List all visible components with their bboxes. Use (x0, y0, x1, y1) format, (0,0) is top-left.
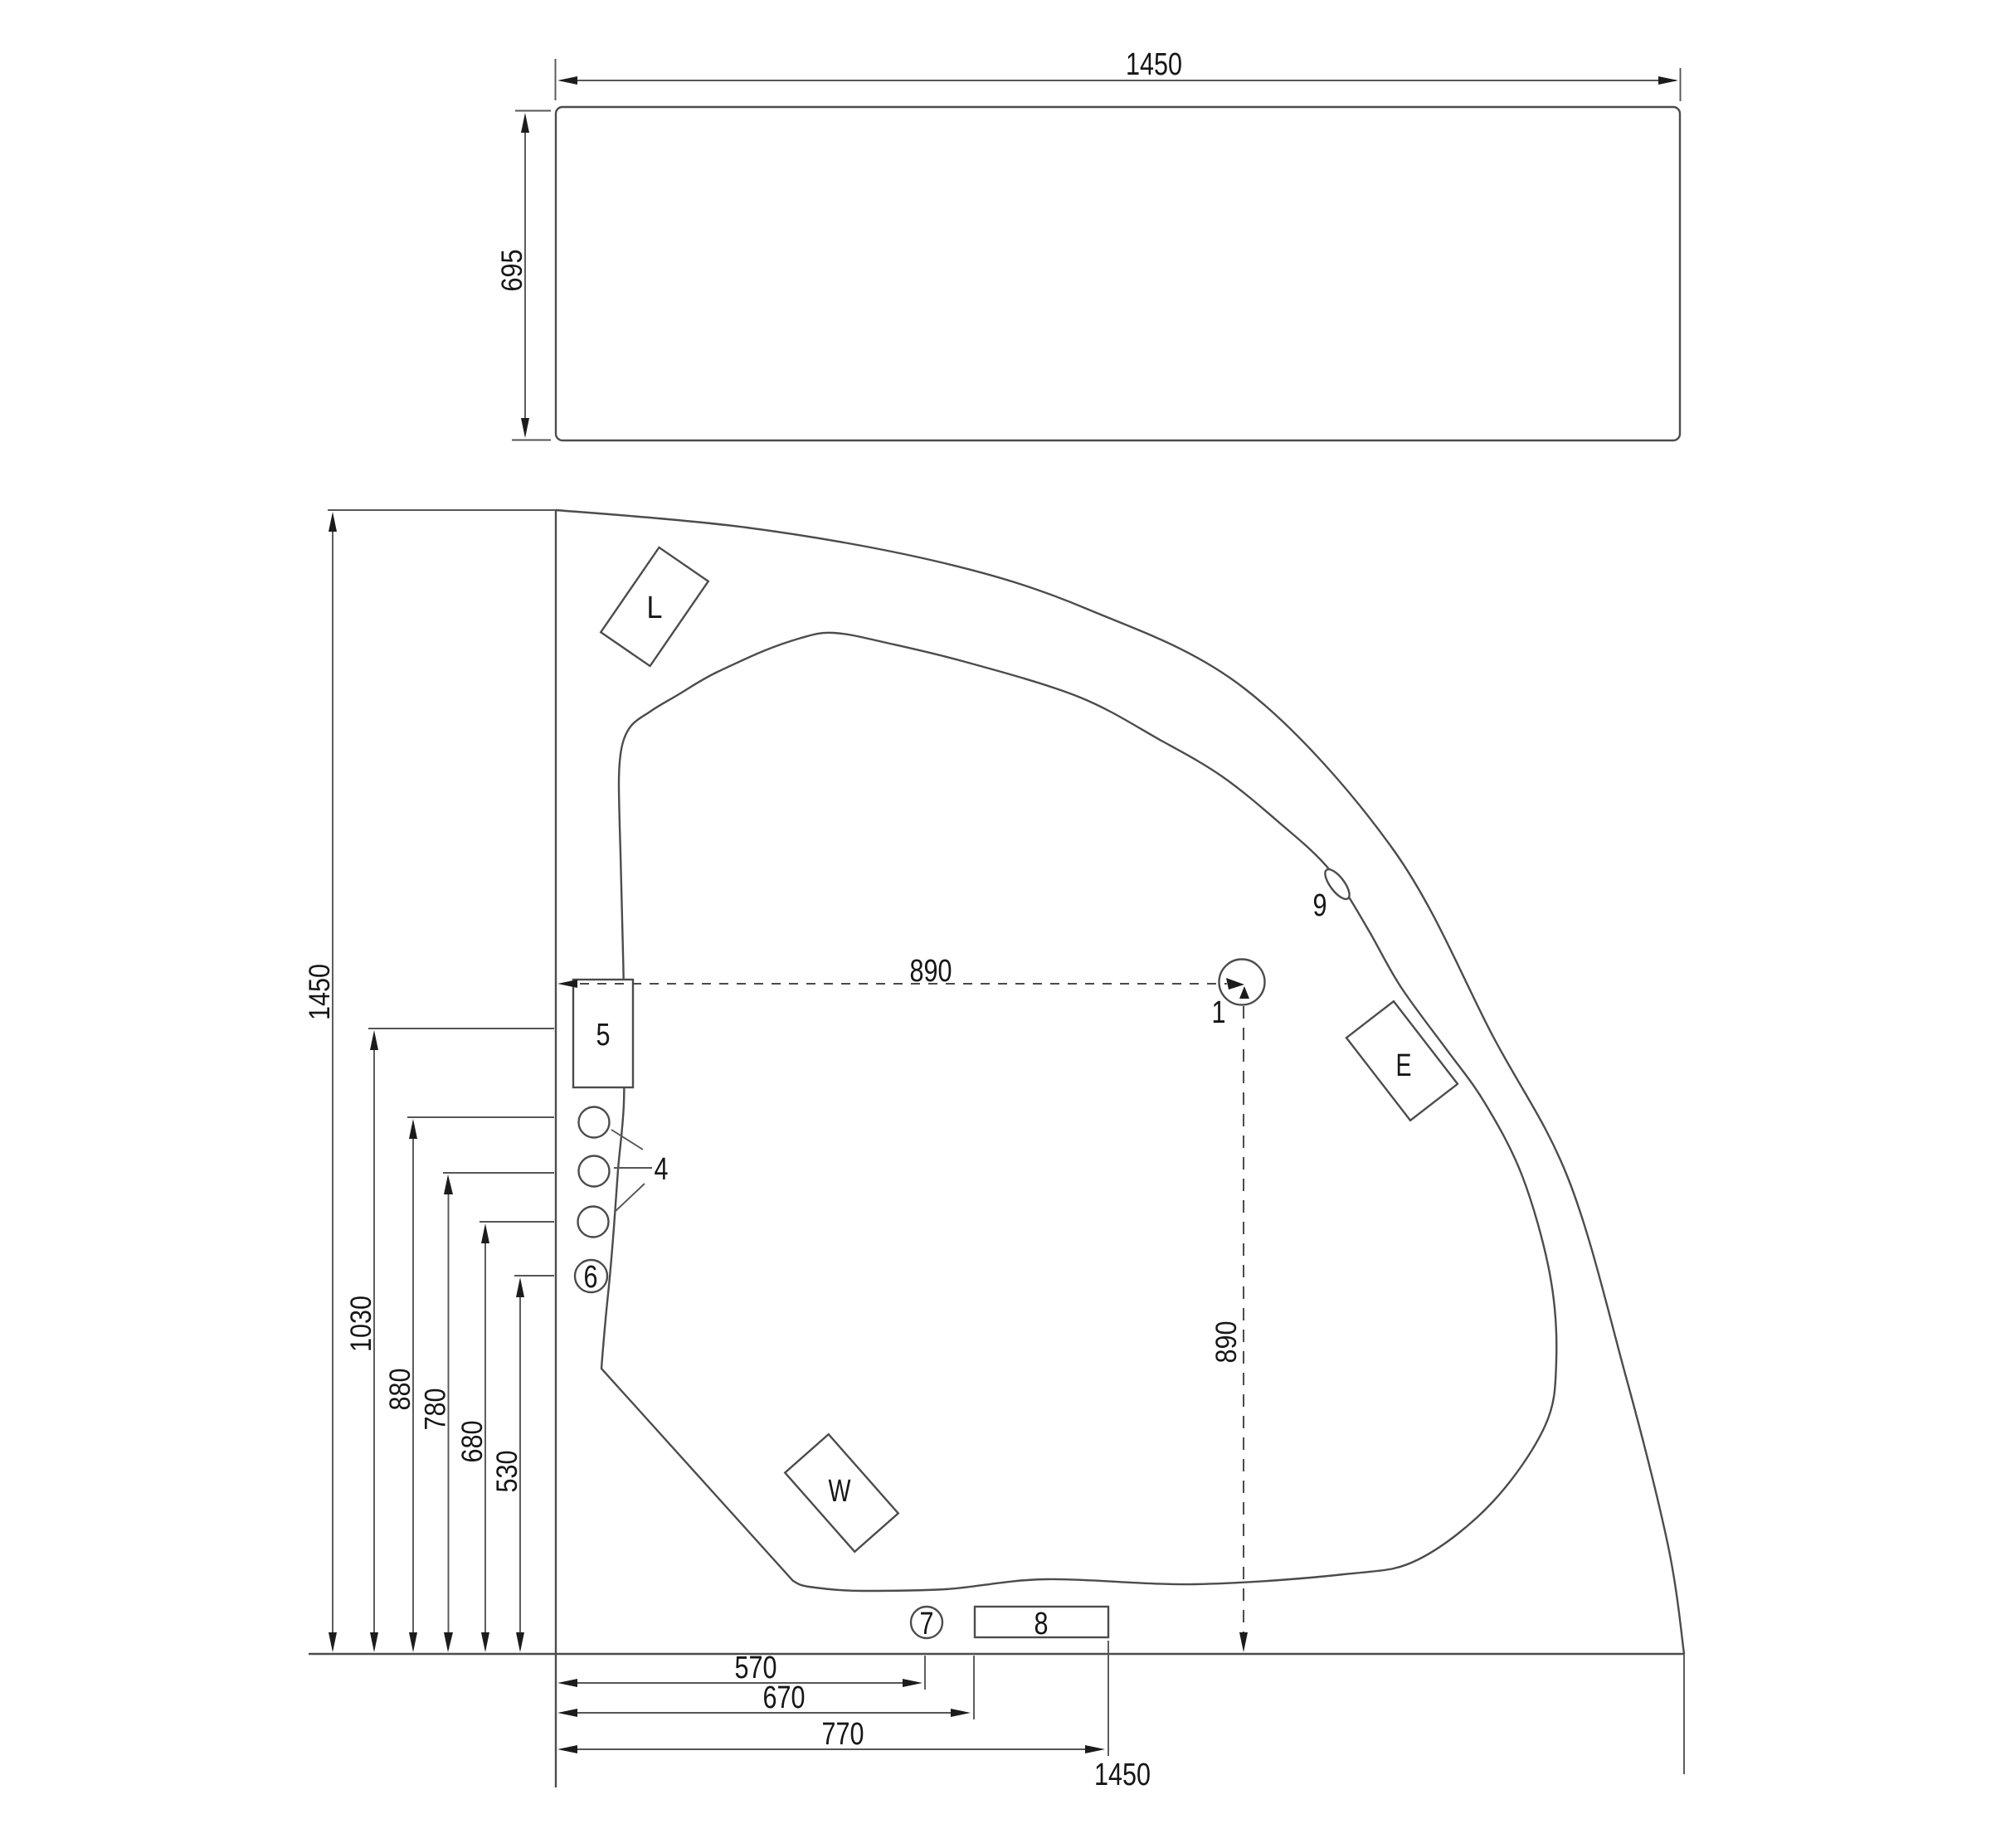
svg-text:1: 1 (1212, 995, 1226, 1030)
svg-text:7: 7 (920, 1607, 934, 1641)
svg-text:530: 530 (491, 1451, 523, 1493)
svg-text:1450: 1450 (1126, 47, 1182, 82)
svg-text:780: 780 (420, 1388, 452, 1431)
svg-text:880: 880 (384, 1369, 416, 1411)
svg-text:4: 4 (655, 1152, 669, 1187)
svg-text:1030: 1030 (345, 1296, 377, 1352)
svg-text:770: 770 (822, 1717, 864, 1752)
svg-text:L: L (647, 591, 663, 625)
svg-text:695: 695 (496, 250, 528, 292)
svg-text:W: W (829, 1474, 851, 1509)
svg-text:6: 6 (584, 1260, 598, 1295)
svg-text:890: 890 (1210, 1321, 1243, 1364)
svg-text:E: E (1396, 1048, 1412, 1083)
svg-text:890: 890 (910, 954, 952, 989)
svg-text:5: 5 (596, 1018, 611, 1053)
svg-text:8: 8 (1034, 1607, 1049, 1641)
svg-text:1450: 1450 (1094, 1758, 1151, 1792)
svg-text:680: 680 (456, 1421, 489, 1463)
svg-text:670: 670 (763, 1680, 806, 1715)
svg-text:1450: 1450 (304, 964, 336, 1020)
svg-text:9: 9 (1313, 888, 1327, 923)
